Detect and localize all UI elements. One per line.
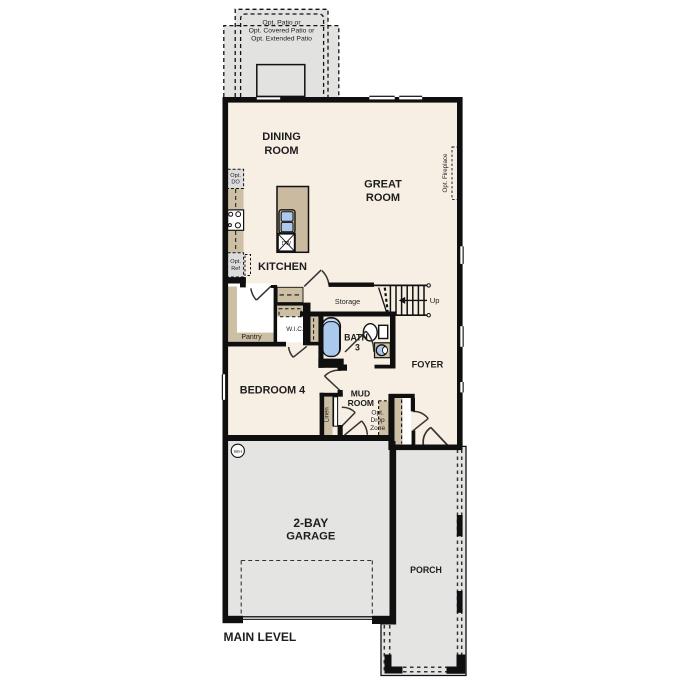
svg-text:2-BAY: 2-BAY xyxy=(293,516,328,530)
svg-text:DINING: DINING xyxy=(262,131,301,143)
svg-text:GARAGE: GARAGE xyxy=(286,531,336,543)
svg-text:Opt.: Opt. xyxy=(371,410,384,417)
svg-text:KITCHEN: KITCHEN xyxy=(258,261,307,273)
svg-text:Up: Up xyxy=(430,296,440,305)
svg-text:FOYER: FOYER xyxy=(412,360,444,370)
svg-text:Opt. Fireplace: Opt. Fireplace xyxy=(442,153,449,192)
svg-text:DW: DW xyxy=(282,241,292,247)
svg-text:Opt.: Opt. xyxy=(230,259,241,265)
svg-text:MUD: MUD xyxy=(351,388,370,398)
svg-text:Opt. Extended Patio: Opt. Extended Patio xyxy=(251,36,312,43)
svg-text:Opt. Covered Patio or: Opt. Covered Patio or xyxy=(249,28,315,35)
svg-text:Opt. Patio or: Opt. Patio or xyxy=(262,20,301,27)
svg-text:ROOM: ROOM xyxy=(366,192,400,204)
svg-text:Pantry: Pantry xyxy=(241,334,262,341)
svg-text:PORCH: PORCH xyxy=(410,565,442,575)
svg-text:MAIN LEVEL: MAIN LEVEL xyxy=(224,630,297,644)
svg-text:ROOM: ROOM xyxy=(348,398,374,408)
svg-text:Opt.: Opt. xyxy=(230,173,241,179)
svg-text:Drop: Drop xyxy=(370,417,385,424)
svg-text:ROOM: ROOM xyxy=(264,145,298,157)
svg-text:BEDROOM 4: BEDROOM 4 xyxy=(240,385,305,397)
svg-text:W.I.C.: W.I.C. xyxy=(286,326,304,333)
svg-text:DO: DO xyxy=(231,180,240,186)
svg-text:Linen: Linen xyxy=(324,407,330,422)
svg-text:3: 3 xyxy=(355,342,360,352)
svg-text:GREAT: GREAT xyxy=(364,178,402,190)
svg-text:WH: WH xyxy=(234,449,243,455)
svg-text:Zone: Zone xyxy=(370,425,385,432)
svg-text:Storage: Storage xyxy=(335,297,360,306)
svg-text:BATH: BATH xyxy=(344,332,368,342)
svg-text:Ref: Ref xyxy=(231,266,240,272)
